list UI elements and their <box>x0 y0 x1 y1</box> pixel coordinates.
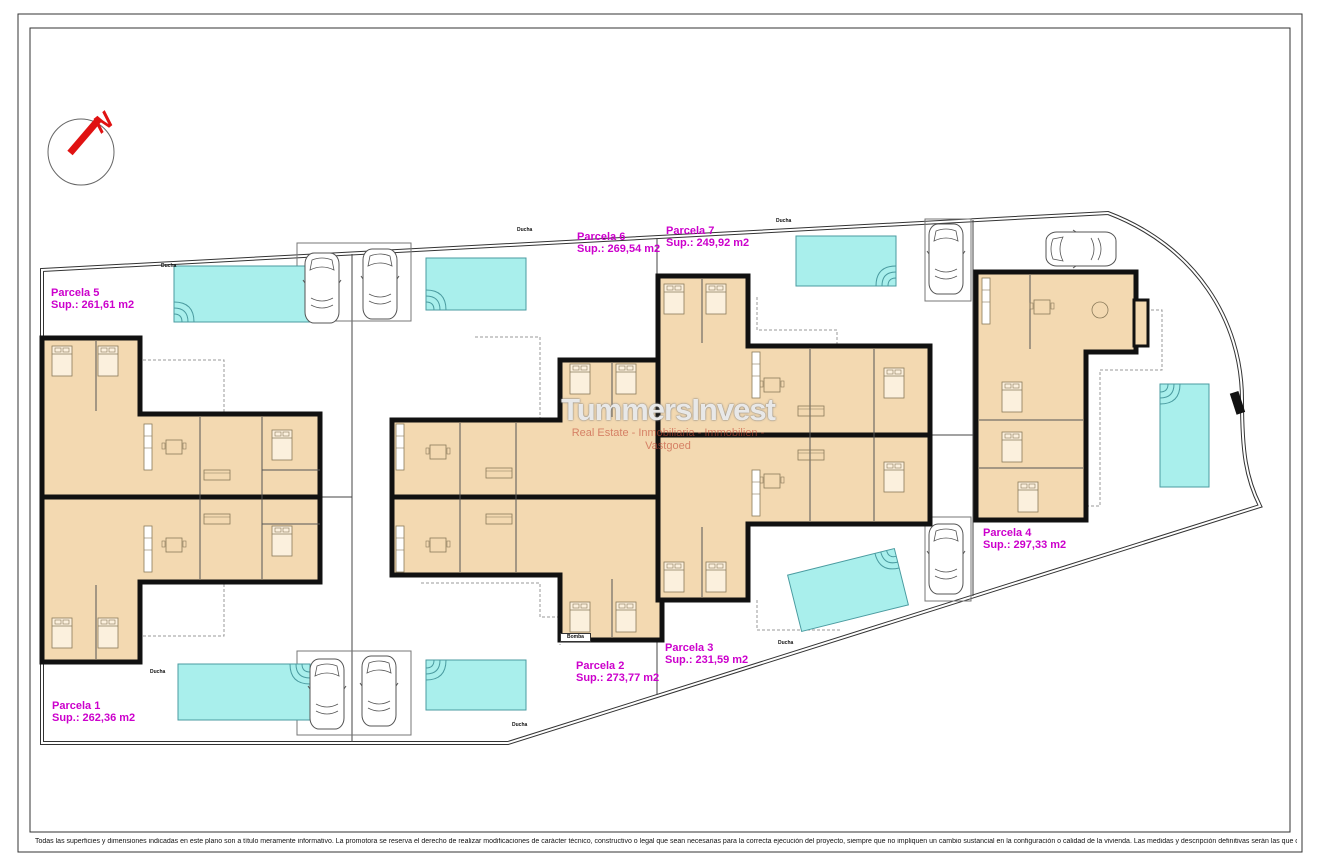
pool-parcela-6 <box>426 258 526 310</box>
ducha-label: Ducha <box>512 723 527 728</box>
pool-parcela-5 <box>174 266 310 322</box>
site-plan-drawing: N <box>0 0 1320 859</box>
parcel-area: Sup.: 297,33 m2 <box>983 539 1066 551</box>
parcel-label-6: Parcela 6 Sup.: 269,54 m2 <box>577 231 660 255</box>
parcel-area: Sup.: 231,59 m2 <box>665 654 748 666</box>
bed-icon <box>1002 432 1022 462</box>
parcel-label-2: Parcela 2 Sup.: 273,77 m2 <box>576 660 659 684</box>
kitchen-icon <box>752 352 760 398</box>
bed-icon <box>664 562 684 592</box>
car-icon <box>308 659 346 729</box>
bed-icon <box>570 364 590 394</box>
parcel-area: Sup.: 261,61 m2 <box>51 299 134 311</box>
building-parcela-4 <box>976 272 1148 520</box>
bed-icon <box>570 602 590 632</box>
bed-icon <box>664 284 684 314</box>
building-parcelas-6-2 <box>392 360 662 640</box>
parcel-label-5: Parcela 5 Sup.: 261,61 m2 <box>51 287 134 311</box>
parcel-name: Parcela 2 <box>576 660 659 672</box>
bed-icon <box>272 430 292 460</box>
pool-parcela-1 <box>178 664 310 720</box>
car-icon <box>927 524 965 594</box>
bed-icon <box>98 618 118 648</box>
ducha-label: Ducha <box>778 641 793 646</box>
disclaimer-text: Todas las superficies y dimensiones indi… <box>35 838 1297 845</box>
pool-parcela-2 <box>426 660 526 710</box>
kitchen-icon <box>752 470 760 516</box>
parcel-label-7: Parcela 7 Sup.: 249,92 m2 <box>666 225 749 249</box>
pool-parcela-3 <box>788 549 909 632</box>
car-icon <box>1046 230 1116 268</box>
site-plan-page: N <box>0 0 1320 859</box>
pool-parcela-4 <box>1160 384 1209 487</box>
parcel-name: Parcela 5 <box>51 287 134 299</box>
parcel-label-3: Parcela 3 Sup.: 231,59 m2 <box>665 642 748 666</box>
bed-icon <box>706 284 726 314</box>
parcel-area: Sup.: 262,36 m2 <box>52 712 135 724</box>
bed-icon <box>1018 482 1038 512</box>
parcel-area: Sup.: 273,77 m2 <box>576 672 659 684</box>
parcel-name: Parcela 1 <box>52 700 135 712</box>
parcel-label-4: Parcela 4 Sup.: 297,33 m2 <box>983 527 1066 551</box>
kitchen-icon <box>144 424 152 470</box>
bed-icon <box>98 346 118 376</box>
bomba-label: Bomba <box>560 633 591 642</box>
pool-parcela-7 <box>796 236 896 286</box>
kitchen-icon <box>982 278 990 324</box>
car-icon <box>927 224 965 294</box>
bed-icon <box>1002 382 1022 412</box>
bed-icon <box>884 462 904 492</box>
bed-icon <box>616 364 636 394</box>
bed-icon <box>884 368 904 398</box>
parcel-area: Sup.: 269,54 m2 <box>577 243 660 255</box>
parcel-label-1: Parcela 1 Sup.: 262,36 m2 <box>52 700 135 724</box>
ducha-label: Ducha <box>161 264 176 269</box>
ducha-label: Ducha <box>776 219 791 224</box>
parcel-name: Parcela 7 <box>666 225 749 237</box>
bed-icon <box>272 526 292 556</box>
bed-icon <box>52 618 72 648</box>
car-icon <box>361 249 399 319</box>
kitchen-icon <box>396 526 404 572</box>
parcel-name: Parcela 6 <box>577 231 660 243</box>
parcel-area: Sup.: 249,92 m2 <box>666 237 749 249</box>
parcel-name: Parcela 3 <box>665 642 748 654</box>
parcel-name: Parcela 4 <box>983 527 1066 539</box>
bed-icon <box>52 346 72 376</box>
bed-icon <box>616 602 636 632</box>
ducha-label: Ducha <box>517 228 532 233</box>
ducha-label: Ducha <box>150 670 165 675</box>
north-compass-icon: N <box>48 106 119 185</box>
kitchen-icon <box>396 424 404 470</box>
bed-icon <box>706 562 726 592</box>
building-parcelas-5-1 <box>42 338 320 662</box>
kitchen-icon <box>144 526 152 572</box>
car-icon <box>360 656 398 726</box>
car-icon <box>303 253 341 323</box>
